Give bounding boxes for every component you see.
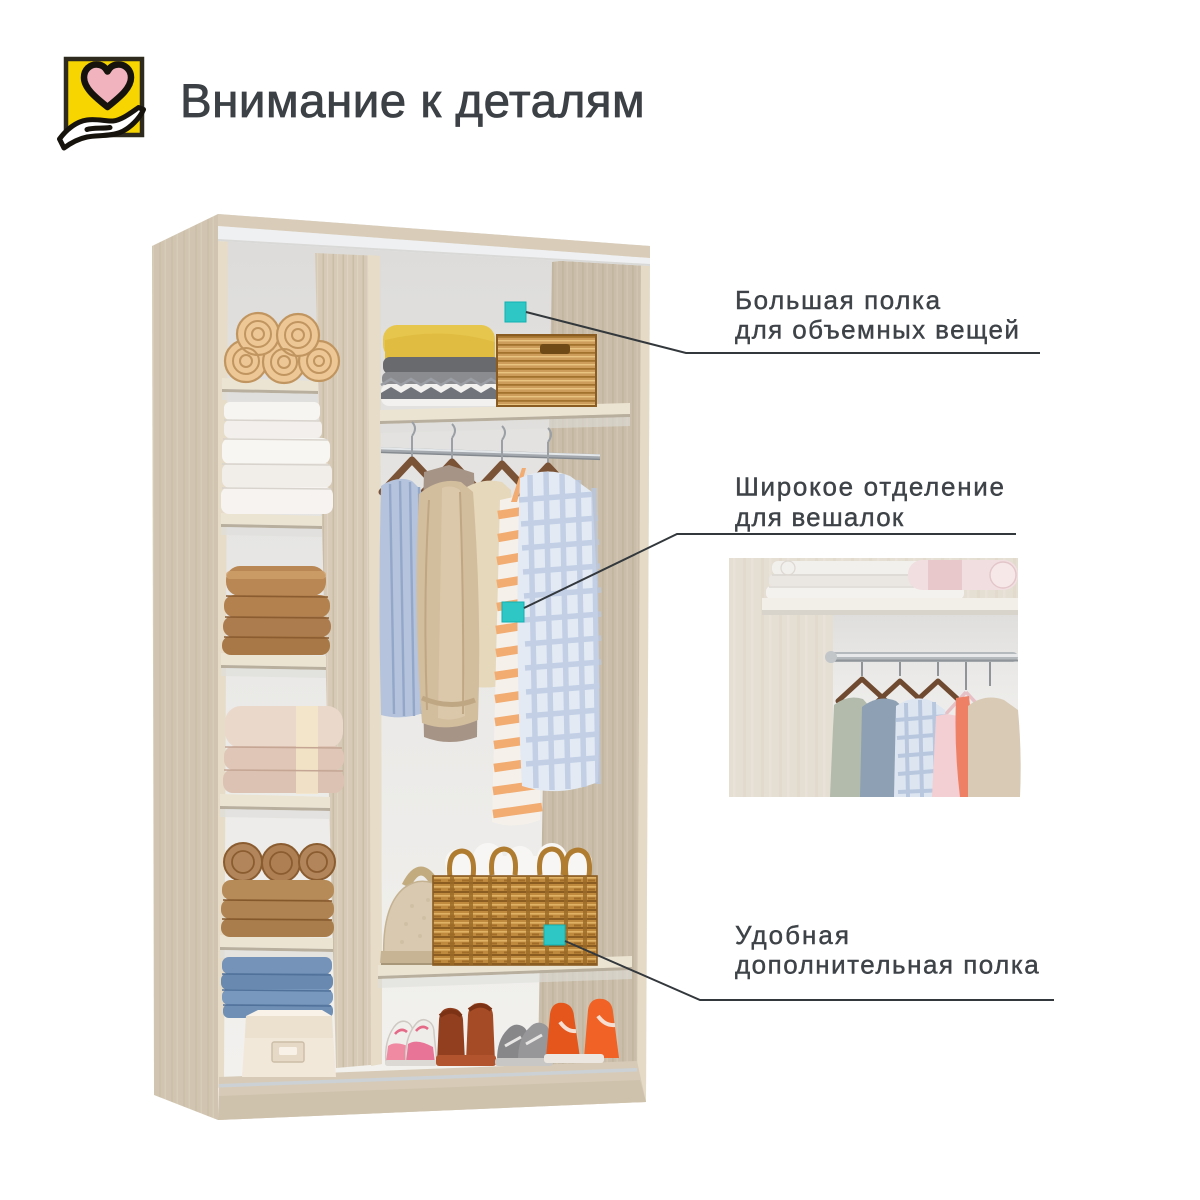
svg-text:для объемных вещей: для объемных вещей xyxy=(735,315,1020,345)
svg-text:Большая полка: Большая полка xyxy=(735,285,942,315)
svg-text:для вешалок: для вешалок xyxy=(735,502,904,532)
svg-text:дополнительная полка: дополнительная полка xyxy=(735,950,1040,980)
svg-text:Широкое отделение: Широкое отделение xyxy=(735,472,1006,502)
svg-text:Удобная: Удобная xyxy=(735,920,851,950)
svg-text:Внимание к деталям: Внимание к деталям xyxy=(180,75,645,128)
